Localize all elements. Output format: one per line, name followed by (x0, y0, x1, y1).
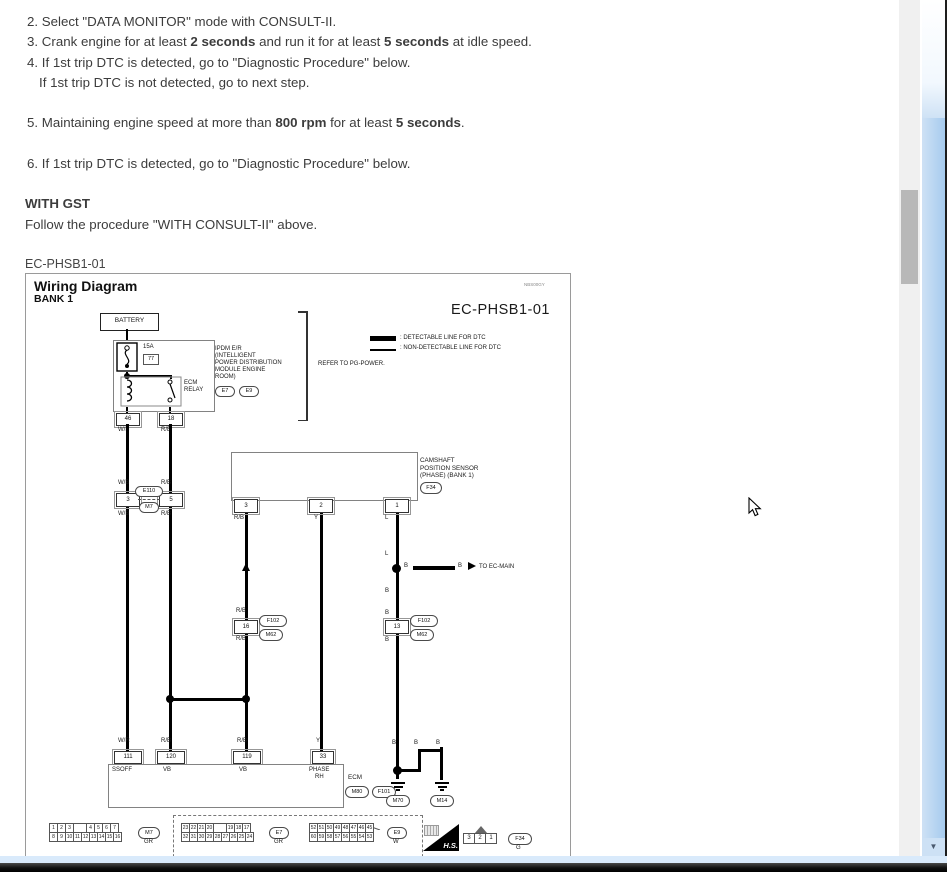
connector-oval-f102: F102 (410, 615, 438, 627)
pin-box-sensor-2: 2 (309, 499, 333, 513)
pin-box-sensor-3: 3 (234, 499, 258, 513)
pin-box-sensor-1: 1 (385, 499, 409, 513)
outer-scrollbar-thumb[interactable] (922, 0, 945, 118)
wire-color-label: W/R (118, 738, 130, 745)
sensor-label-line: (PHASE) (BANK 1) (420, 472, 474, 479)
ecm-pin-name: RH (315, 774, 324, 781)
wire-segment (320, 511, 323, 753)
wire-color-label: B (414, 740, 418, 747)
hs-logo: H.S. (423, 824, 459, 851)
ecm-pin-name: SSOFF (112, 767, 132, 774)
ground-icon (434, 782, 450, 791)
connector-f34-peak (475, 826, 487, 833)
connector-color-label: G (516, 845, 521, 852)
connector-oval-m70: M70 (386, 795, 410, 807)
taskbar (0, 863, 947, 872)
scroll-down-button[interactable]: ▼ (922, 838, 945, 856)
wire-color-label: W/B (118, 511, 129, 518)
step-5-part: . (461, 115, 465, 130)
connector-grid-e7-row2: 323130292827262524 (181, 832, 253, 842)
connector-oval-m7-strip: M7 (138, 827, 160, 839)
pin-cell: 24 (245, 832, 254, 842)
legend-detectable-label: : DETECTABLE LINE FOR DTC (400, 335, 486, 342)
pin-box-j1-right: 5 (159, 493, 183, 507)
bracket-tick (298, 420, 306, 422)
diagram-sheet-code: EC-PHSB1-01 (451, 302, 550, 318)
legend-non-detectable-label: : NON-DETECTABLE LINE FOR DTC (400, 345, 501, 352)
connector-color-label: W (393, 839, 399, 846)
junction-dot (393, 766, 402, 775)
wire-color-label: R/B (234, 515, 244, 522)
wire-color-label: B (404, 563, 408, 570)
connector-oval-m62: M62 (259, 629, 283, 641)
camshaft-sensor-box (231, 452, 418, 501)
pin-box-ecm-33: 33 (312, 751, 334, 764)
step-3-bold: 2 seconds (190, 34, 255, 49)
step-5-part: 5. Maintaining engine speed at more than (27, 115, 275, 130)
to-ec-main-label: TO EC-MAIN (479, 564, 514, 571)
step-5-part: for at least (326, 115, 395, 130)
step-3-text: 3. Crank engine for at least 2 seconds a… (27, 34, 532, 49)
step-4b-text: If 1st trip DTC is not detected, go to n… (39, 75, 310, 90)
wire-segment (169, 424, 172, 753)
ipdm-label-line: IPDM E/R (215, 346, 242, 353)
gst-body-text: Follow the procedure "WITH CONSULT-II" a… (25, 217, 317, 232)
branch-arrow-icon (468, 562, 476, 570)
step-5-bold: 5 seconds (396, 115, 461, 130)
scroll-down-icon: ▼ (930, 842, 938, 851)
wire-color-label: R/B (236, 608, 246, 615)
refer-label: REFER TO PG-POWER. (318, 361, 385, 368)
diagram-title: Wiring Diagram (34, 278, 137, 294)
connector-color-label: GR (144, 839, 153, 846)
wire-color-label: B (458, 563, 462, 570)
wire-color-label: B (436, 740, 440, 747)
wire-color-label: R/B (161, 480, 171, 487)
step-6-text: 6. If 1st trip DTC is detected, go to "D… (27, 156, 410, 171)
step-5-bold: 800 rpm (275, 115, 326, 130)
step-3-part: and run it for at least (255, 34, 384, 49)
step-3-bold: 5 seconds (384, 34, 449, 49)
wire-segment (418, 749, 421, 772)
pin-cell: 16 (113, 832, 122, 842)
wire-color-label: B (385, 588, 389, 595)
legend-thick-line (370, 336, 396, 341)
wire-color-label: Y (314, 515, 318, 522)
connector-oval-f102: F102 (259, 615, 287, 627)
connector-oval-f34: F34 (420, 482, 442, 494)
hs-label: H.S. (443, 841, 458, 850)
legend-thin-line (370, 349, 396, 351)
connector-oval-e7: E7 (215, 386, 235, 397)
figure-code: EC-PHSB1-01 (25, 257, 106, 271)
wire-color-label: B (385, 637, 389, 644)
wire-segment (413, 566, 455, 570)
pin-cell: 1 (485, 833, 497, 844)
ipdm-label-line: (INTELLIGENT (215, 353, 256, 360)
connector-oval-m62: M62 (410, 629, 434, 641)
pin-box-j2-right: 13 (385, 620, 409, 634)
step-5-text: 5. Maintaining engine speed at more than… (27, 115, 465, 130)
wire-segment (440, 747, 443, 780)
fuse-amp-label: 15A (143, 344, 154, 351)
ipdm-label-line: POWER DISTRIBUTION (215, 360, 282, 367)
step-3-part: 3. Crank engine for at least (27, 34, 190, 49)
connector-oval-m14: M14 (430, 795, 454, 807)
fuse-slot-box: 77 (143, 354, 159, 365)
battery-box: BATTERY (100, 313, 159, 331)
pin-box-ecm-111: 111 (114, 751, 142, 764)
wiring-diagram-figure: Wiring Diagram BANK 1 NBS00GY EC-PHSB1-0… (25, 273, 571, 857)
pin-box-ecm-120: 120 (157, 751, 185, 764)
sensor-label-line: POSITION SENSOR (420, 465, 478, 472)
wire-color-label: Y (316, 738, 320, 745)
junction-dot (166, 695, 174, 703)
outer-scrollbar-track[interactable] (922, 0, 945, 856)
window-bottom-strip (0, 856, 947, 863)
inner-scrollbar-track[interactable] (899, 0, 920, 856)
wire-color-label: B (392, 740, 396, 747)
connector-oval-e9: E9 (239, 386, 259, 397)
junction-dot (392, 564, 401, 573)
connector-oval-e7-strip: E7 (269, 827, 289, 839)
wire-segment (396, 511, 399, 779)
ecm-pin-name: VB (163, 767, 171, 774)
connector-oval-m80: M80 (345, 786, 369, 798)
step-4-text: 4. If 1st trip DTC is detected, go to "D… (27, 55, 410, 70)
wire-segment (170, 698, 246, 701)
wire-color-label: R/B (236, 636, 246, 643)
diagram-subtitle: BANK 1 (34, 293, 73, 305)
inner-scrollbar-thumb[interactable] (901, 190, 918, 284)
pin-box-j2-left: 16 (234, 620, 258, 634)
wire-color-label: L (385, 551, 388, 558)
pin-box-ecm-119: 119 (233, 751, 261, 764)
bracket-tick (298, 311, 306, 313)
wire-color-label: B (385, 610, 389, 617)
connector-oval-f34-strip: F34 (508, 833, 532, 845)
ground-icon (390, 782, 406, 791)
junction-dot (242, 695, 250, 703)
wire-color-label: R/B (161, 738, 171, 745)
diagram-note-code: NBS00GY (524, 282, 545, 287)
connector-color-label: GR (274, 839, 283, 846)
wire-segment (126, 424, 129, 753)
ipdm-label-line: MODULE ENGINE (215, 367, 265, 374)
hs-connector-icon (424, 825, 439, 836)
ipdm-label-line: ROOM) (215, 374, 236, 381)
relay-label-line2: RELAY (184, 387, 203, 394)
bracket-line (306, 311, 308, 421)
flow-arrow-up-icon (242, 563, 250, 571)
connector-pair-dashes (138, 499, 160, 500)
connector-oval-m7: M7 (139, 502, 159, 513)
pin-cell: 53 (365, 832, 374, 842)
sensor-label-line: CAMSHAFT (420, 457, 455, 464)
step-2-text: 2. Select "DATA MONITOR" mode with CONSU… (27, 14, 336, 29)
wire-color-label: L (385, 515, 388, 522)
step-3-part: at idle speed. (449, 34, 532, 49)
wire-color-label: R/B (237, 738, 247, 745)
ecm-label: ECM (348, 774, 362, 781)
relay-label-line1: ECM (184, 380, 197, 387)
connector-grid-m7-row2: 8910111213141516 (49, 832, 121, 842)
ecm-pin-name: PHASE (309, 767, 329, 774)
connector-oval-e110: E110 (135, 486, 163, 497)
ecm-pin-name: VB (239, 767, 247, 774)
mouse-cursor-icon (748, 497, 762, 523)
connector-oval-e9-strip: E9 (387, 827, 407, 839)
wire-color-label: R/B (161, 511, 171, 518)
relay-icon (120, 376, 182, 412)
wire-color-label: W/B (118, 480, 129, 487)
connector-grid-f34: 321 (463, 833, 496, 844)
gst-heading: WITH GST (25, 196, 90, 211)
connector-grid-e9-row2: 6059585756555453 (309, 832, 373, 842)
